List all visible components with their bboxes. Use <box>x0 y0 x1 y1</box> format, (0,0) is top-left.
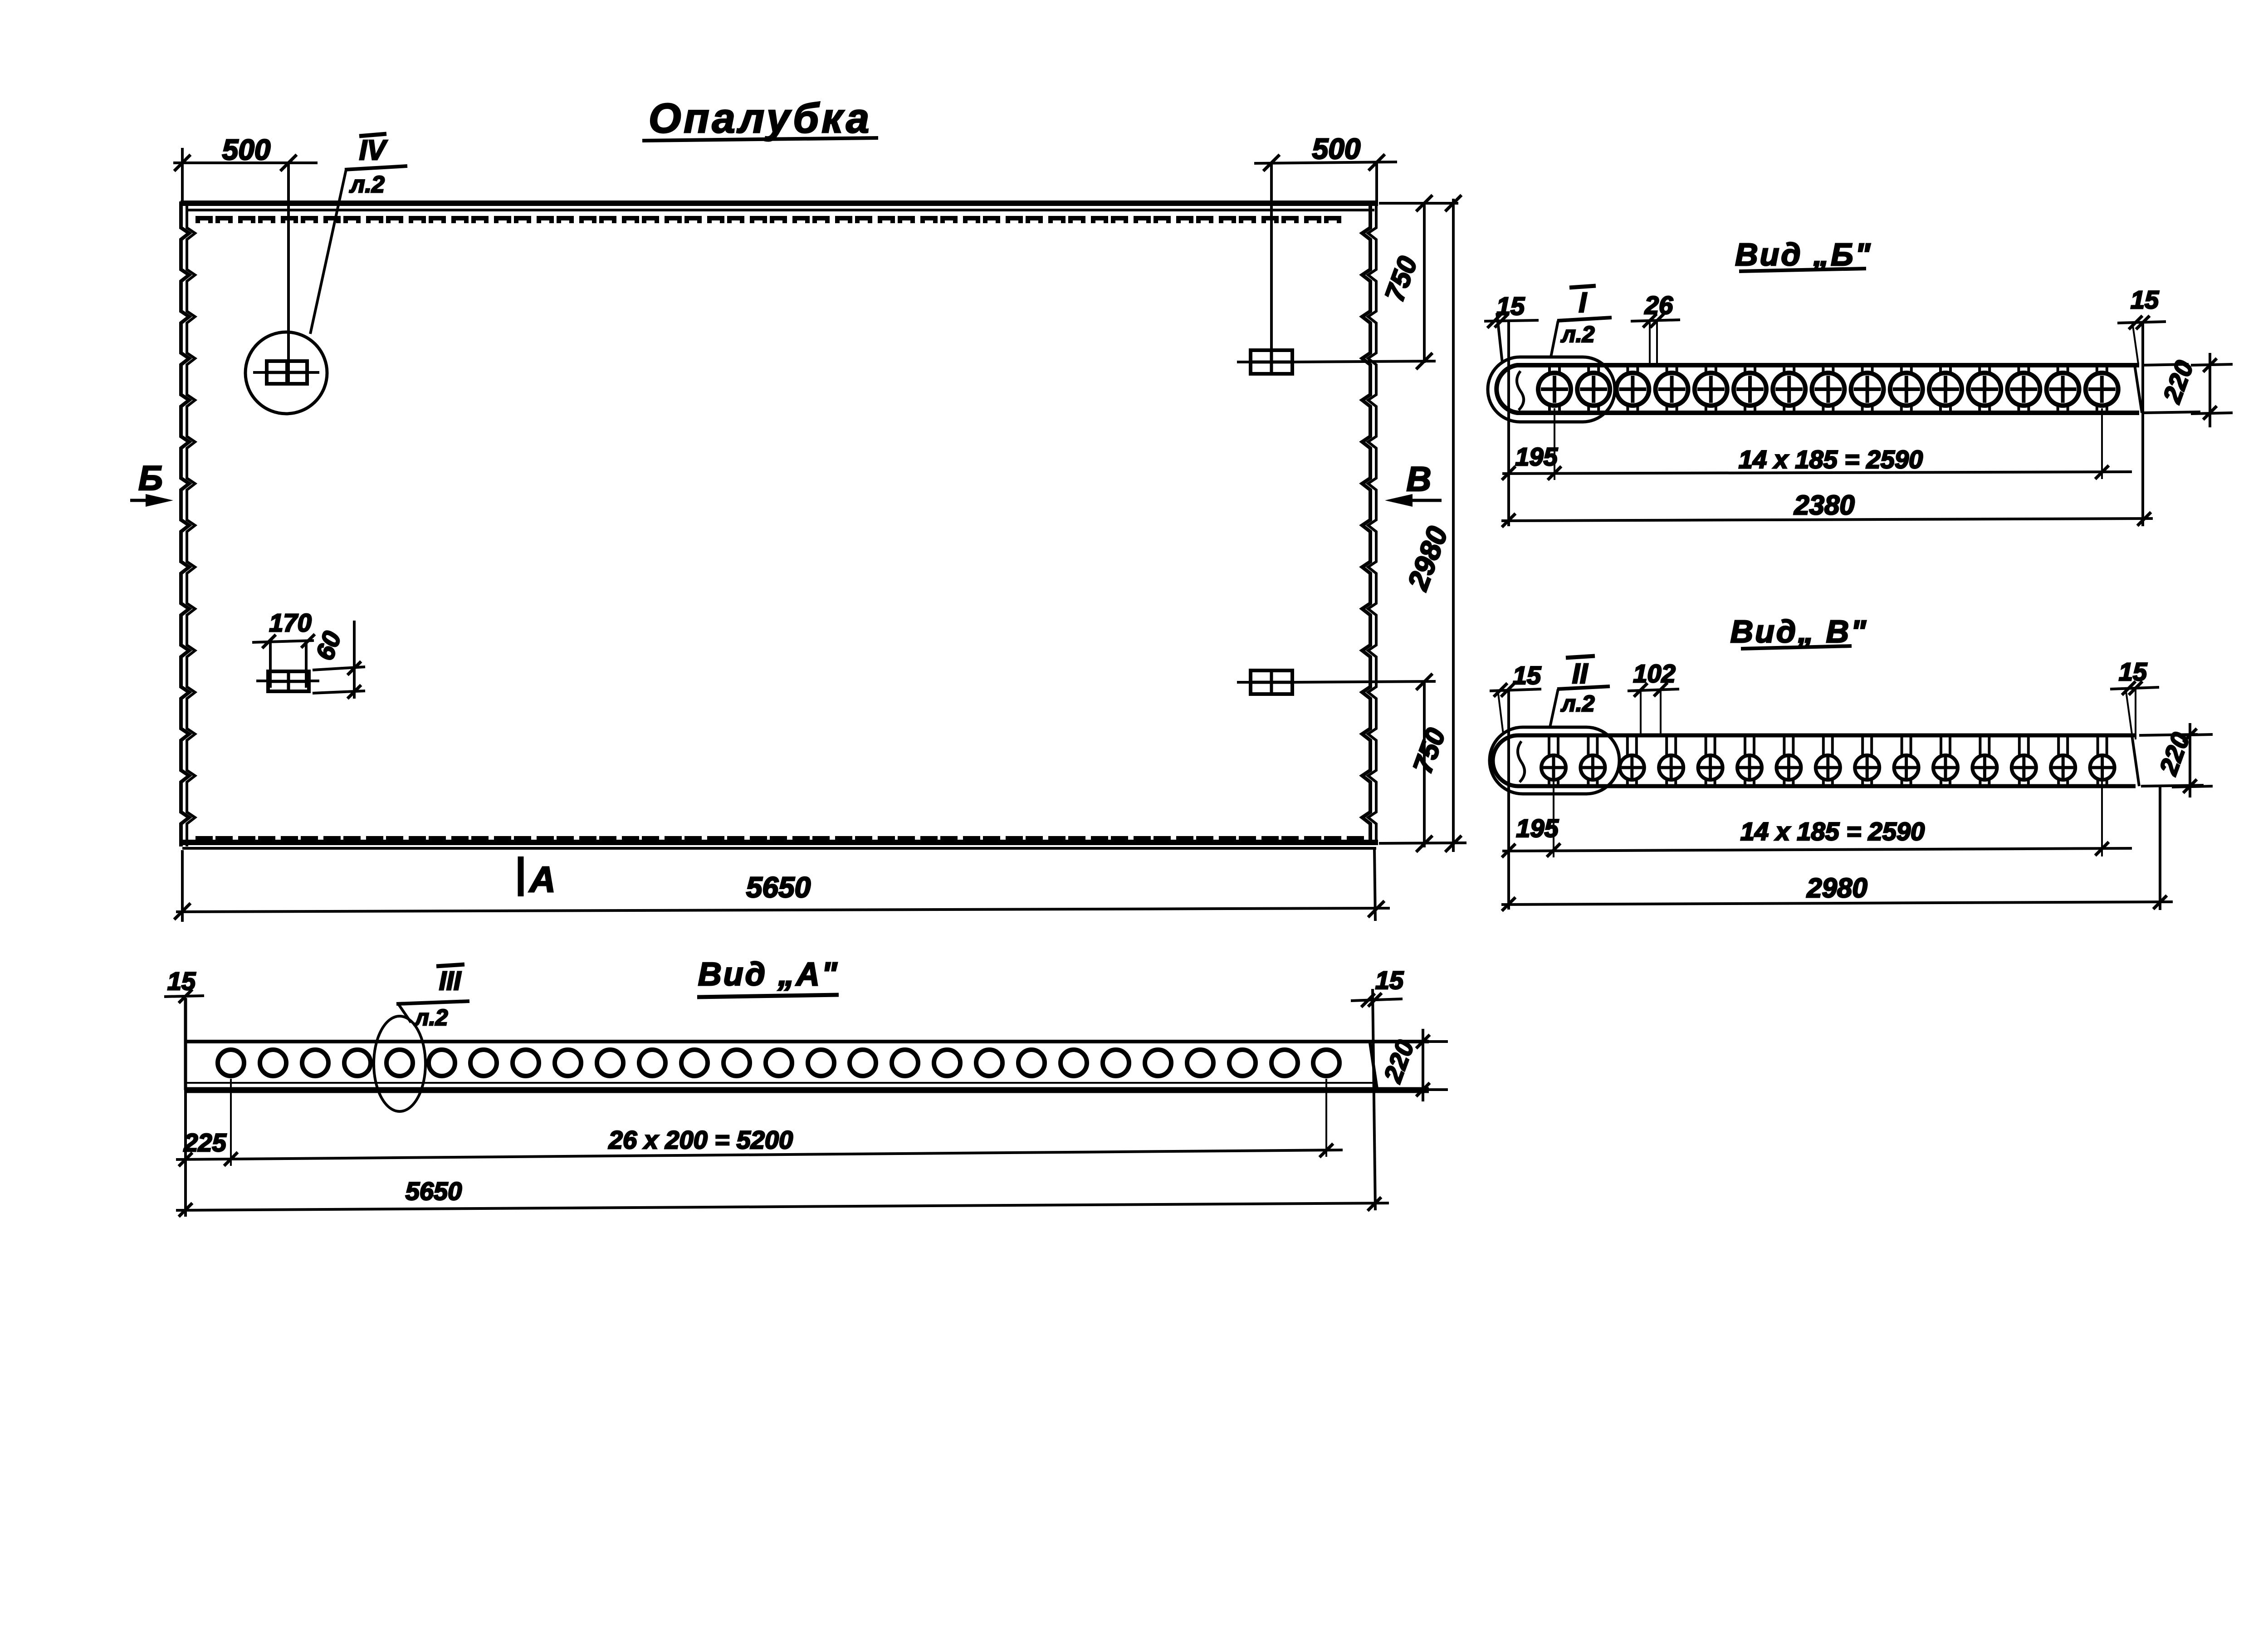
svg-text:Вид„ В": Вид„ В" <box>1730 614 1868 649</box>
svg-text:500: 500 <box>1312 132 1361 165</box>
svg-text:14 х 185 = 2590: 14 х 185 = 2590 <box>1739 445 1923 474</box>
svg-text:Б: Б <box>138 459 163 498</box>
svg-text:2380: 2380 <box>1794 490 1854 520</box>
svg-text:Вид „Б": Вид „Б" <box>1735 237 1872 272</box>
svg-text:IV: IV <box>359 135 388 166</box>
svg-text:л.2: л.2 <box>349 171 385 198</box>
svg-text:II: II <box>1572 658 1589 690</box>
svg-text:195: 195 <box>1515 442 1558 471</box>
svg-text:15: 15 <box>1375 966 1404 994</box>
svg-text:л.2: л.2 <box>1561 691 1595 716</box>
svg-text:500: 500 <box>222 133 271 166</box>
svg-text:Опалубка: Опалубка <box>649 95 872 142</box>
svg-text:5650: 5650 <box>406 1177 462 1205</box>
svg-text:III: III <box>439 966 462 996</box>
svg-text:л.2: л.2 <box>414 1005 448 1030</box>
svg-text:15: 15 <box>1513 661 1541 690</box>
svg-text:225: 225 <box>183 1128 226 1157</box>
svg-text:15: 15 <box>2119 657 2147 686</box>
svg-text:15: 15 <box>2131 285 2159 314</box>
svg-text:л.2: л.2 <box>1561 322 1595 347</box>
svg-text:14 х 185 = 2590: 14 х 185 = 2590 <box>1740 817 1925 846</box>
svg-text:Вид „А": Вид „А" <box>698 956 839 993</box>
svg-text:I: I <box>1579 287 1587 318</box>
svg-text:170: 170 <box>269 608 311 637</box>
svg-text:26: 26 <box>1644 291 1673 319</box>
svg-text:А: А <box>528 859 556 900</box>
svg-text:195: 195 <box>1516 814 1559 842</box>
svg-text:5650: 5650 <box>746 871 811 904</box>
svg-text:26 х 200 = 5200: 26 х 200 = 5200 <box>608 1125 793 1154</box>
svg-text:В: В <box>1407 460 1432 499</box>
svg-text:102: 102 <box>1633 659 1675 688</box>
svg-text:2980: 2980 <box>1806 873 1867 903</box>
